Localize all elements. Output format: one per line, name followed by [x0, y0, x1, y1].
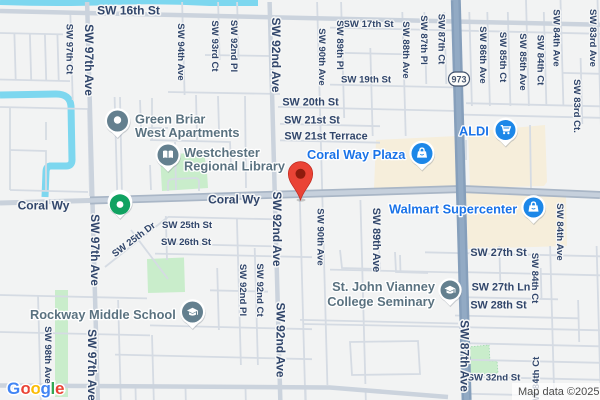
svg-text:SW 94th Ave: SW 94th Ave [175, 23, 186, 80]
svg-text:SW 92nd Ct: SW 92nd Ct [254, 263, 265, 317]
svg-text:SW 92nd Ave: SW 92nd Ave [269, 17, 283, 92]
svg-text:SW 21st Terrace: SW 21st Terrace [284, 131, 367, 143]
svg-text:SW 83rd Ct.: SW 83rd Ct. [571, 79, 582, 133]
svg-text:973: 973 [451, 75, 466, 85]
svg-text:SW 19th St: SW 19th St [341, 75, 392, 86]
svg-text:SW 84th Ave: SW 84th Ave [551, 9, 562, 66]
svg-text:ALDI: ALDI [459, 124, 489, 139]
svg-text:SW 20th St: SW 20th St [282, 97, 339, 109]
svg-text:SW 27th Ln: SW 27th Ln [472, 282, 531, 294]
svg-text:SW 97th Ave: SW 97th Ave [88, 214, 102, 286]
svg-text:Map data ©2025: Map data ©2025 [518, 386, 600, 398]
svg-text:Rockway Middle School: Rockway Middle School [30, 307, 176, 322]
svg-text:SW 98th Ave: SW 98th Ave [42, 326, 53, 383]
svg-text:SW 90th Ave: SW 90th Ave [316, 28, 327, 85]
svg-text:SW 84th Ct: SW 84th Ct [535, 35, 546, 86]
svg-text:SW 89th Pl: SW 89th Pl [334, 20, 345, 70]
svg-text:West Apartments: West Apartments [135, 125, 240, 140]
svg-text:SW 21st St: SW 21st St [284, 115, 340, 127]
svg-text:SW 32nd St: SW 32nd St [468, 373, 522, 384]
svg-text:SW 87th Pl: SW 87th Pl [418, 15, 429, 65]
svg-text:SW 92nd Pl: SW 92nd Pl [228, 20, 239, 72]
svg-text:SW 87th Ct: SW 87th Ct [436, 14, 447, 65]
svg-text:SW 84th Ave: SW 84th Ave [554, 203, 565, 260]
svg-text:SW 26th St: SW 26th St [161, 237, 212, 248]
svg-text:SW 28th St: SW 28th St [470, 300, 527, 312]
svg-text:Coral Way Plaza: Coral Way Plaza [307, 147, 406, 162]
svg-text:SW 92nd Ave: SW 92nd Ave [270, 191, 284, 266]
svg-text:Regional Library: Regional Library [184, 159, 286, 174]
svg-text:SW 84th Ct: SW 84th Ct [529, 253, 540, 304]
svg-text:SW 89th Ave: SW 89th Ave [370, 208, 382, 273]
svg-text:e: e [55, 379, 64, 398]
svg-text:Coral Wy: Coral Wy [208, 193, 260, 207]
svg-text:SW 85th Ct: SW 85th Ct [497, 32, 508, 83]
svg-text:G: G [7, 379, 20, 398]
svg-text:g: g [41, 379, 51, 398]
svg-text:SW 97th Ave: SW 97th Ave [82, 24, 96, 96]
svg-text:SW 90th Ave: SW 90th Ave [315, 208, 326, 265]
svg-text:SW 97th Ave: SW 97th Ave [85, 329, 99, 400]
svg-text:College Seminary: College Seminary [327, 294, 435, 309]
svg-text:o: o [31, 379, 41, 398]
svg-text:SW 88th Ave: SW 88th Ave [400, 21, 411, 78]
svg-text:o: o [21, 379, 31, 398]
svg-text:SW 27th St: SW 27th St [470, 247, 527, 259]
svg-text:SW 86th Ave: SW 86th Ave [477, 26, 488, 83]
svg-text:SW 92nd Ave: SW 92nd Ave [274, 302, 288, 377]
svg-text:SW 93rd Ct: SW 93rd Ct [209, 20, 220, 72]
svg-text:SW 17th St: SW 17th St [343, 19, 394, 30]
svg-text:Walmart Supercenter: Walmart Supercenter [389, 202, 517, 217]
svg-text:SW 92nd Pl: SW 92nd Pl [237, 264, 248, 316]
svg-text:SW 87th Ave: SW 87th Ave [458, 320, 472, 392]
svg-text:St. John Vianney: St. John Vianney [332, 279, 436, 294]
svg-text:SW 97th Ct: SW 97th Ct [64, 24, 75, 75]
svg-text:Coral Wy: Coral Wy [18, 199, 70, 213]
svg-text:SW 83rd Ave: SW 83rd Ave [587, 9, 598, 67]
svg-text:SW 16th St: SW 16th St [97, 4, 160, 18]
svg-text:SW 85th Ave: SW 85th Ave [517, 33, 528, 90]
svg-text:SW 25th St: SW 25th St [162, 220, 213, 231]
